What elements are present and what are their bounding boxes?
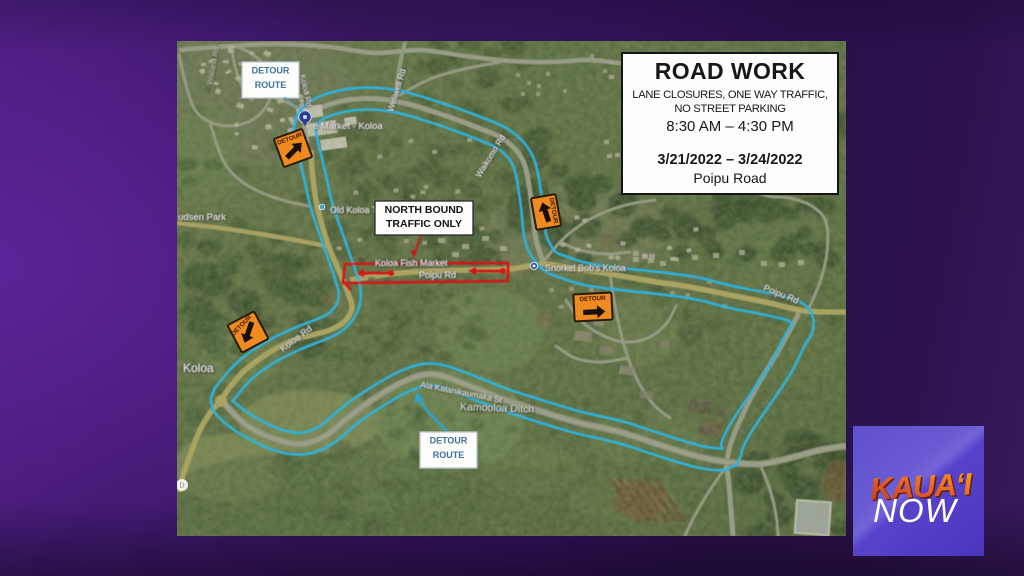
svg-text:Snorkel Bob's Koloa: Snorkel Bob's Koloa <box>545 263 626 273</box>
svg-text:ROUTE: ROUTE <box>255 80 287 90</box>
svg-text:Koloa: Koloa <box>183 361 214 375</box>
svg-text:Old Koloa T: Old Koloa T <box>330 205 378 215</box>
svg-text:NOW: NOW <box>873 492 959 529</box>
svg-text:udsen Park: udsen Park <box>178 212 226 223</box>
svg-text:e Market - Koloa: e Market - Koloa <box>313 121 383 132</box>
svg-text:TRAFFIC ONLY: TRAFFIC ONLY <box>386 218 462 230</box>
svg-text:DETOUR: DETOUR <box>430 436 468 446</box>
svg-text:Koloa Fish Market: Koloa Fish Market <box>375 258 448 268</box>
svg-text:NORTH BOUND: NORTH BOUND <box>385 204 464 216</box>
svg-text:D: D <box>179 483 184 490</box>
svg-text:DETOUR: DETOUR <box>252 66 290 76</box>
svg-text:Poipu Rd: Poipu Rd <box>419 270 456 280</box>
svg-text:DETOUR: DETOUR <box>579 295 606 303</box>
svg-text:ROUTE: ROUTE <box>433 450 465 460</box>
